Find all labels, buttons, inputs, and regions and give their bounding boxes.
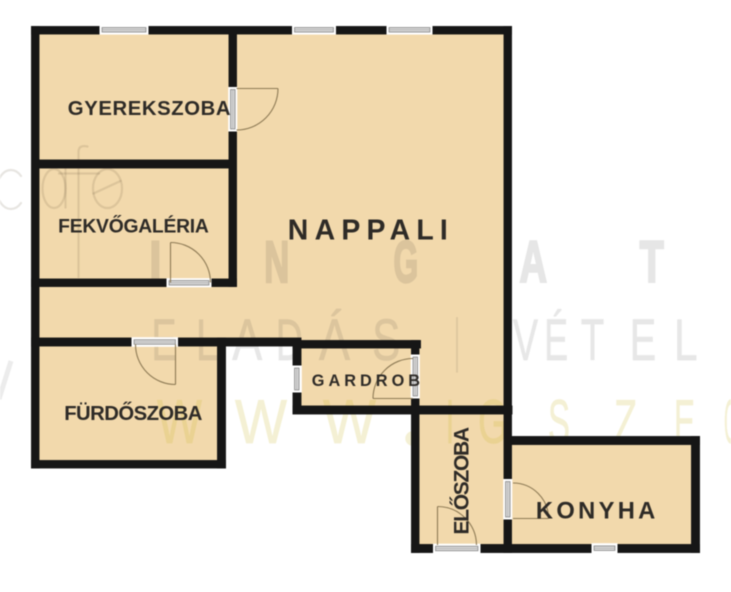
svg-text:T: T bbox=[640, 230, 664, 294]
svg-text:W: W bbox=[235, 388, 288, 457]
svg-text:|: | bbox=[455, 308, 459, 373]
svg-text:L: L bbox=[674, 307, 698, 372]
svg-text:É: É bbox=[544, 308, 568, 373]
svg-text:V: V bbox=[513, 309, 538, 373]
svg-text:G: G bbox=[724, 387, 731, 456]
svg-text:S: S bbox=[548, 387, 570, 457]
svg-text:A: A bbox=[520, 231, 547, 295]
svg-text:Z: Z bbox=[614, 387, 637, 456]
svg-text:ELŐSZOBA: ELŐSZOBA bbox=[451, 427, 474, 535]
svg-text:S: S bbox=[372, 307, 400, 372]
svg-text:E: E bbox=[630, 307, 656, 372]
svg-text:W: W bbox=[323, 386, 376, 456]
svg-text:FEKVŐGALÉRIA: FEKVŐGALÉRIA bbox=[58, 215, 209, 238]
svg-text:G: G bbox=[478, 387, 508, 457]
svg-text:GARDROB: GARDROB bbox=[312, 372, 421, 390]
svg-text:FÜRDŐSZOBA: FÜRDŐSZOBA bbox=[64, 402, 203, 425]
svg-text:N: N bbox=[264, 231, 289, 295]
svg-text:GYEREKSZOBA: GYEREKSZOBA bbox=[68, 98, 231, 120]
svg-text:T: T bbox=[581, 308, 605, 373]
